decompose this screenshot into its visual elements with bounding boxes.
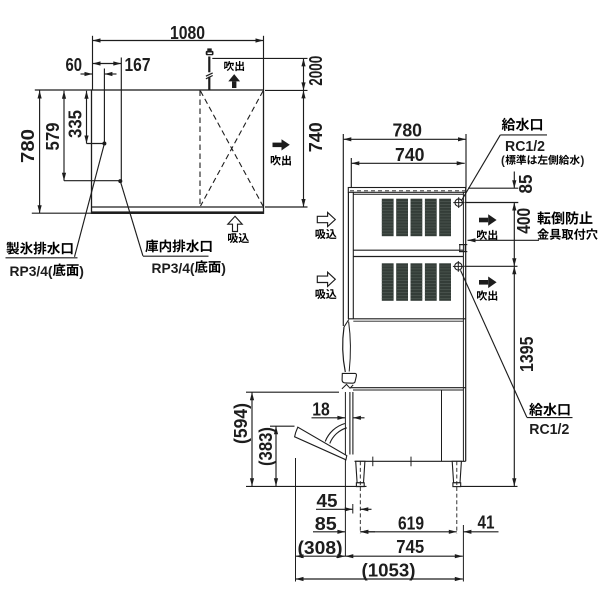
svg-text:1080: 1080 [170,23,205,43]
svg-text:RP3/4(: RP3/4( [10,263,53,279]
svg-text:85: 85 [315,514,337,534]
svg-text:): ) [79,263,84,279]
svg-text:): ) [221,260,226,276]
svg-text:740: 740 [306,122,326,152]
svg-text:RC1/2: RC1/2 [529,422,569,438]
svg-text:RC1/2: RC1/2 [505,139,545,155]
svg-text:619: 619 [398,514,424,534]
svg-text:740: 740 [395,145,425,165]
svg-text:60: 60 [66,55,83,75]
svg-text:335: 335 [66,110,86,138]
svg-text:RP3/4(: RP3/4( [152,260,195,276]
svg-text:745: 745 [396,537,424,557]
svg-text:85: 85 [516,175,536,194]
svg-text:45: 45 [317,491,338,511]
svg-text:(308): (308) [298,538,343,558]
svg-text:): ) [581,156,585,168]
svg-text:(594): (594) [231,403,251,444]
svg-text:(1053): (1053) [362,561,416,581]
svg-text:780: 780 [393,121,423,141]
svg-text:400: 400 [514,208,534,234]
svg-text:(: ( [501,156,505,168]
svg-text:780: 780 [18,129,38,163]
svg-text:1395: 1395 [517,337,537,373]
svg-text:2000: 2000 [306,56,326,86]
svg-text:18: 18 [312,400,330,420]
svg-text:41: 41 [478,513,495,533]
svg-text:167: 167 [125,55,151,75]
svg-text:(383): (383) [256,427,276,466]
svg-text:579: 579 [43,123,63,151]
